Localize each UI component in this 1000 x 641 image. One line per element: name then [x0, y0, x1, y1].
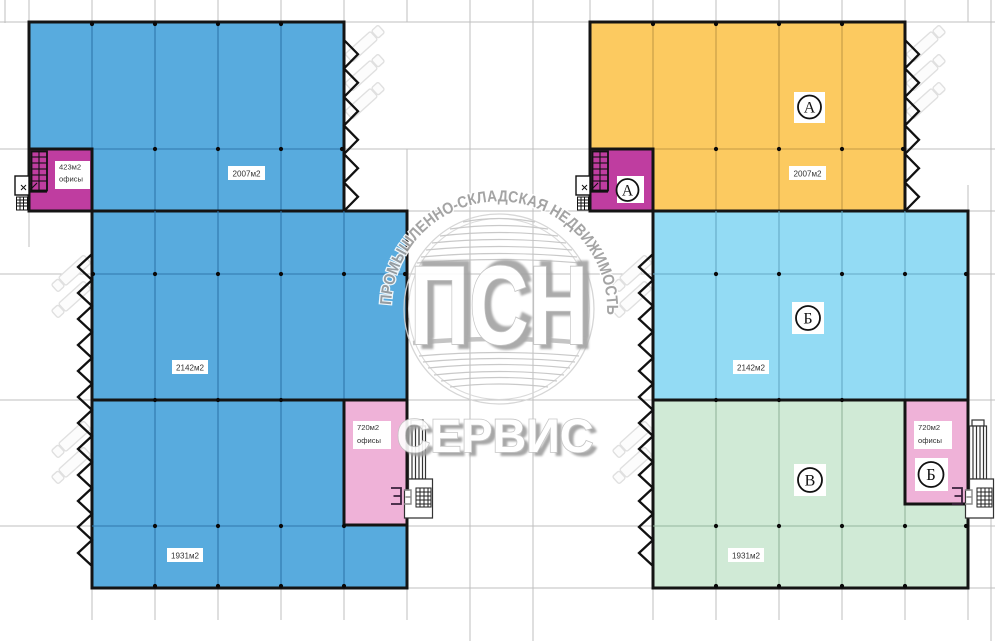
svg-text:1931м2: 1931м2	[732, 552, 761, 561]
svg-text:720м2: 720м2	[918, 423, 940, 432]
svg-text:В: В	[805, 473, 816, 490]
svg-text:А: А	[804, 100, 816, 117]
svg-text:720м2: 720м2	[357, 423, 379, 432]
svg-text:2007м2: 2007м2	[793, 170, 822, 179]
svg-text:ПСН: ПСН	[410, 243, 588, 368]
svg-text:2142м2: 2142м2	[737, 364, 766, 373]
svg-text:офисы: офисы	[59, 175, 83, 184]
svg-text:Б: Б	[803, 311, 812, 328]
svg-text:423м2: 423м2	[59, 163, 81, 172]
svg-text:офисы: офисы	[918, 436, 942, 445]
svg-text:офисы: офисы	[357, 436, 381, 445]
svg-text:А: А	[622, 183, 634, 200]
svg-text:2007м2: 2007м2	[232, 170, 261, 179]
svg-text:2142м2: 2142м2	[176, 364, 205, 373]
svg-text:1931м2: 1931м2	[171, 552, 200, 561]
svg-text:СЕРВИС: СЕРВИС	[397, 409, 594, 462]
svg-text:Б: Б	[926, 465, 935, 484]
